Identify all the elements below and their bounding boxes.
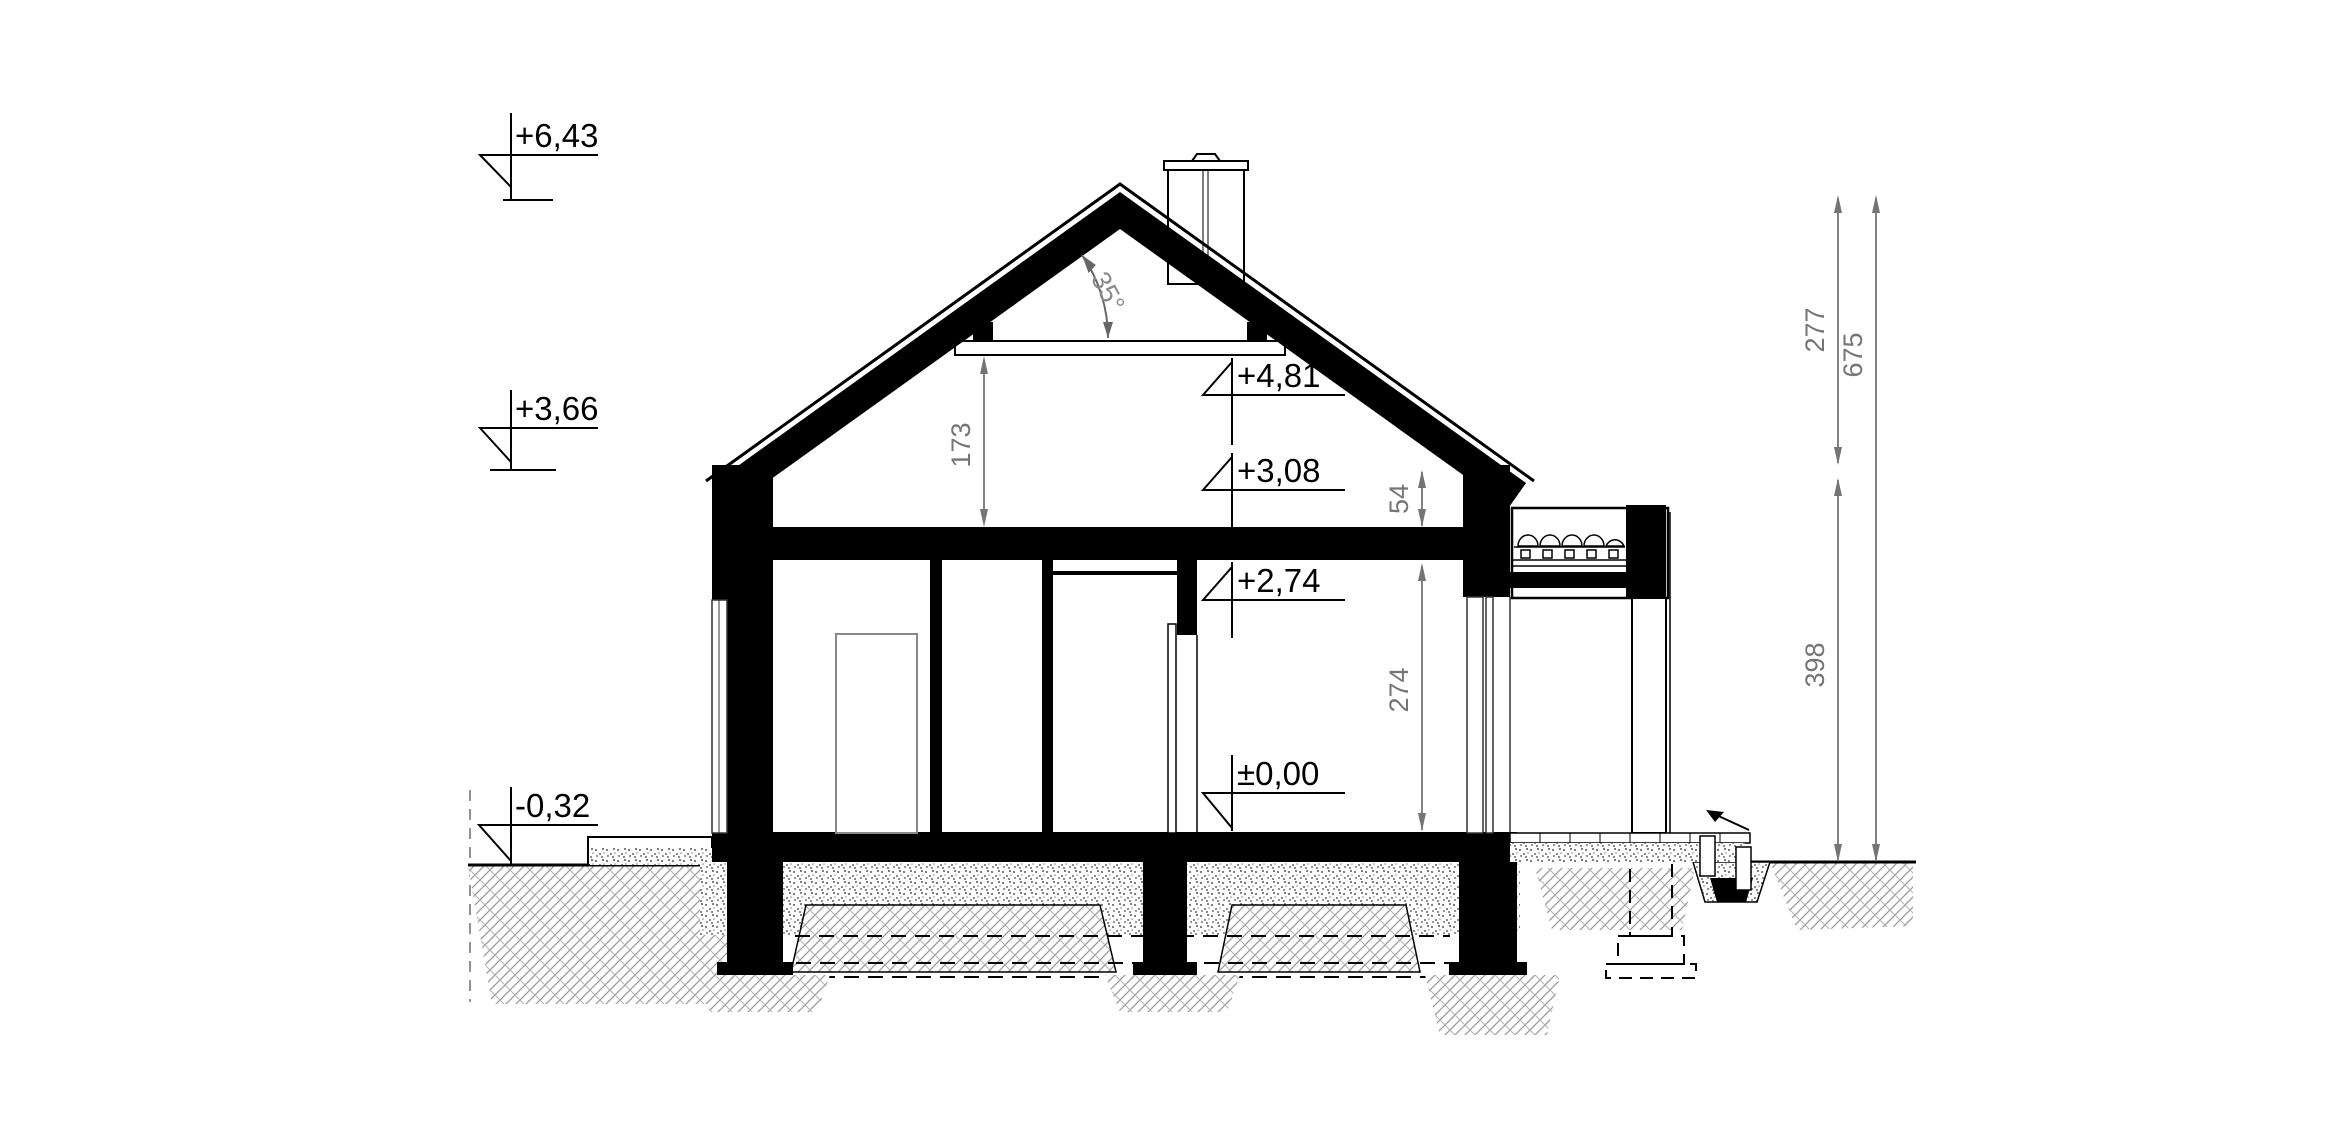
porch (1510, 505, 1751, 890)
section-canvas: 35° (0, 0, 2329, 1130)
partition-wall-2 (1042, 560, 1053, 833)
floor-slab (712, 832, 1517, 862)
foundation-pier-right (1459, 862, 1517, 962)
collar-level-label: +4,81 (1237, 357, 1321, 394)
soil-mound-left (791, 905, 1116, 972)
porch-column-base-dashed (1606, 964, 1696, 978)
foundation-pier-center (1143, 862, 1187, 962)
chimney-topper (1192, 154, 1220, 161)
terrace-curb-2 (1736, 847, 1751, 890)
porch-column (1632, 598, 1666, 833)
paving-bedding-stipple (590, 848, 712, 865)
foundation-footing-left (717, 962, 793, 976)
terrace-curb-1 (1700, 836, 1715, 876)
room-height-dim-label: 274 (1384, 667, 1414, 712)
soil-mound-right (1218, 905, 1420, 972)
terrain-level-label: -0,32 (515, 787, 590, 824)
soil-hatch-right (1770, 862, 1913, 930)
roof-pitch-angle: 35° (1082, 252, 1131, 338)
soil-below-footing-right (1425, 975, 1560, 1035)
eaves-level-label: +3,66 (515, 390, 599, 427)
collar-tie-beam (955, 341, 1285, 355)
roof (706, 184, 1534, 514)
level-markers-left (479, 113, 598, 865)
structure (712, 465, 1517, 862)
soil-below-footing-center (1105, 975, 1240, 1012)
ceiling-slab (712, 527, 1510, 560)
right-door-glazing (1486, 597, 1493, 833)
foundation-footing-right (1449, 962, 1527, 976)
floor-level-label: ±0,00 (1237, 755, 1319, 792)
door-leaf-section (1168, 624, 1176, 833)
soil-below-footing-left (695, 975, 830, 1012)
ridge-level-label: +6,43 (515, 117, 599, 154)
total-height-dim-label: 675 (1838, 332, 1868, 377)
roof-height-dim-label: 277 (1800, 307, 1830, 352)
knee-height-dim-label: 54 (1384, 484, 1414, 514)
ceiling-level-label: +2,74 (1237, 562, 1321, 599)
chimney-cap (1164, 161, 1248, 170)
porch-column-footing-dashed (1618, 936, 1684, 964)
foundation-footing-center (1133, 962, 1197, 976)
porch-post-head (1626, 505, 1666, 598)
opening-head-line (1053, 571, 1177, 575)
angle-arrow-top (1082, 252, 1097, 273)
partition-wall-1 (930, 560, 942, 833)
right-door-frame (1467, 597, 1483, 833)
porch-beam (1510, 572, 1626, 588)
slab-top-level-label: +3,08 (1237, 452, 1321, 489)
hanging-lintel (1177, 560, 1197, 635)
left-wall-lower (727, 600, 773, 833)
roof-pitch-label: 35° (1085, 267, 1131, 317)
soil-hatch-under-terrace (1535, 868, 1695, 930)
interior-door-outline (836, 634, 917, 833)
slope-arrow-head (1706, 810, 1724, 822)
house-cross-section-drawing: 35° (0, 0, 2329, 1130)
attic-height-dim-label: 173 (946, 422, 976, 467)
wall-height-dim-label: 398 (1800, 642, 1830, 687)
angle-arrow-bottom (1103, 322, 1113, 338)
foundation-pier-left (727, 862, 783, 962)
